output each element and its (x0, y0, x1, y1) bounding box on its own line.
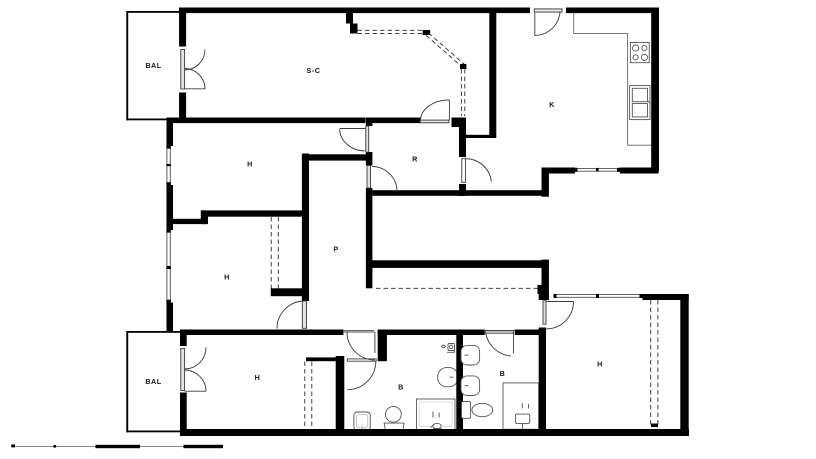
svg-text:B: B (398, 383, 404, 392)
svg-text:H: H (597, 360, 603, 369)
svg-text:S-C: S-C (307, 66, 321, 75)
svg-text:H: H (255, 373, 261, 382)
svg-text:H: H (224, 273, 230, 282)
svg-text:R: R (412, 155, 418, 164)
svg-text:BAL: BAL (145, 377, 161, 386)
svg-text:BAL: BAL (145, 61, 161, 70)
svg-text:K: K (549, 100, 555, 109)
svg-text:H: H (247, 160, 253, 169)
svg-text:P: P (333, 245, 338, 254)
svg-text:B: B (500, 369, 506, 378)
